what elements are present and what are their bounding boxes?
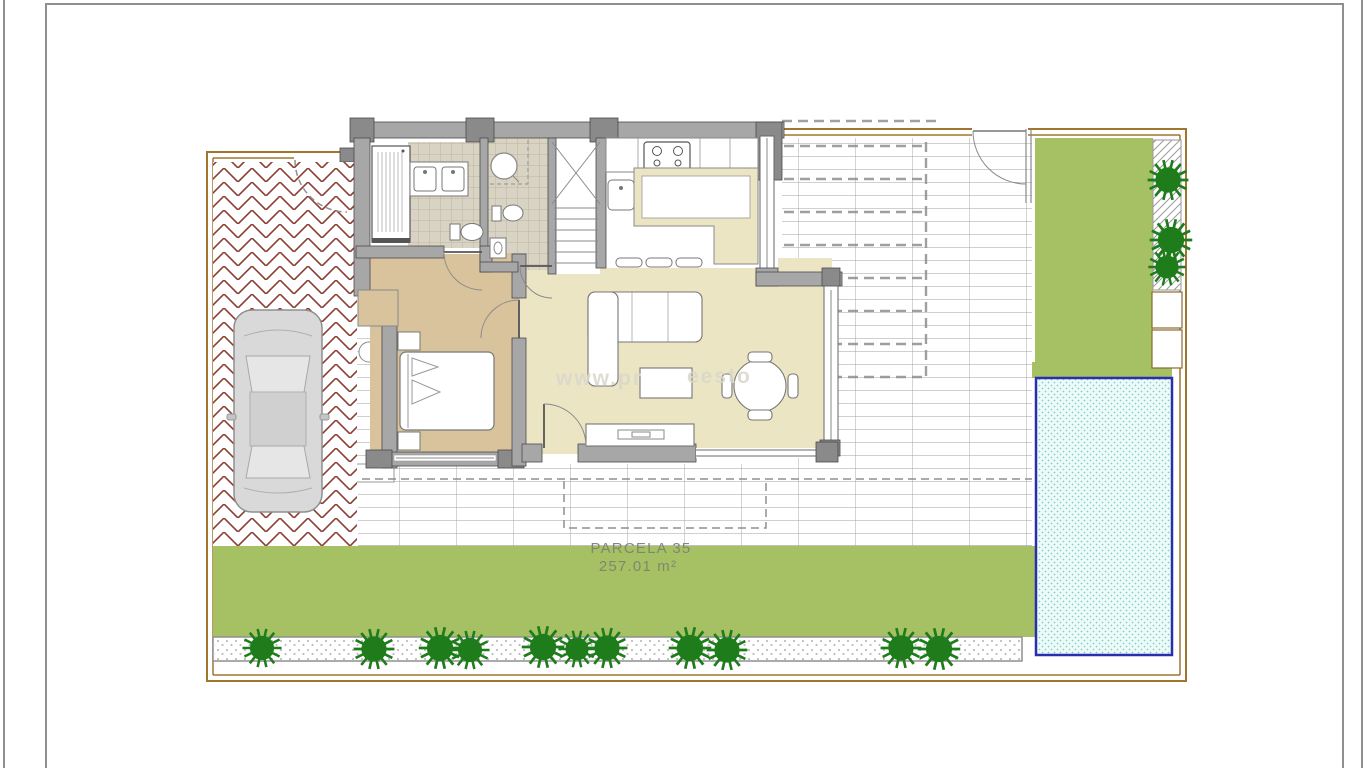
toilet-tank	[450, 224, 460, 240]
nightstand	[398, 432, 420, 450]
parcel-area-label: 257.01 m²	[599, 558, 677, 575]
bar-stool	[646, 258, 672, 267]
wall-living-south	[578, 444, 696, 462]
grass-top-right	[1035, 138, 1153, 364]
side-box	[1152, 330, 1182, 368]
kitchen-sink	[608, 180, 634, 210]
toilet-bowl	[461, 224, 483, 241]
rear-window	[246, 446, 310, 478]
bar-stool	[616, 258, 642, 267]
toilet-tank	[492, 206, 501, 221]
floor-plan-canvas: www.pr eesto PARCELA 35 257.01 m²	[0, 0, 1366, 768]
watermark-fragment-2: eesto	[687, 365, 752, 388]
toilet-bowl	[503, 205, 523, 221]
windshield	[246, 356, 310, 392]
closet	[358, 290, 398, 326]
mirror-left	[227, 414, 236, 420]
pool	[1036, 378, 1172, 655]
sink	[490, 238, 506, 258]
wall-west	[354, 138, 370, 296]
chair	[748, 352, 772, 362]
side-box	[1152, 292, 1182, 328]
coffee-table	[640, 368, 692, 398]
parcel-name-label: PARCELA 35	[591, 540, 692, 557]
car	[227, 310, 329, 512]
nightstand	[398, 332, 420, 350]
shower-drain	[491, 153, 517, 179]
wall-bath-divider	[356, 246, 444, 258]
mirror-right	[320, 414, 329, 420]
wall-north	[354, 122, 784, 138]
chair	[748, 410, 772, 420]
stairs-floor	[552, 138, 600, 274]
chair	[788, 374, 798, 398]
car-roof	[250, 392, 306, 446]
stove	[644, 142, 690, 170]
watermark-fragment-1: www.pr	[555, 367, 643, 390]
bar-stool	[676, 258, 702, 267]
